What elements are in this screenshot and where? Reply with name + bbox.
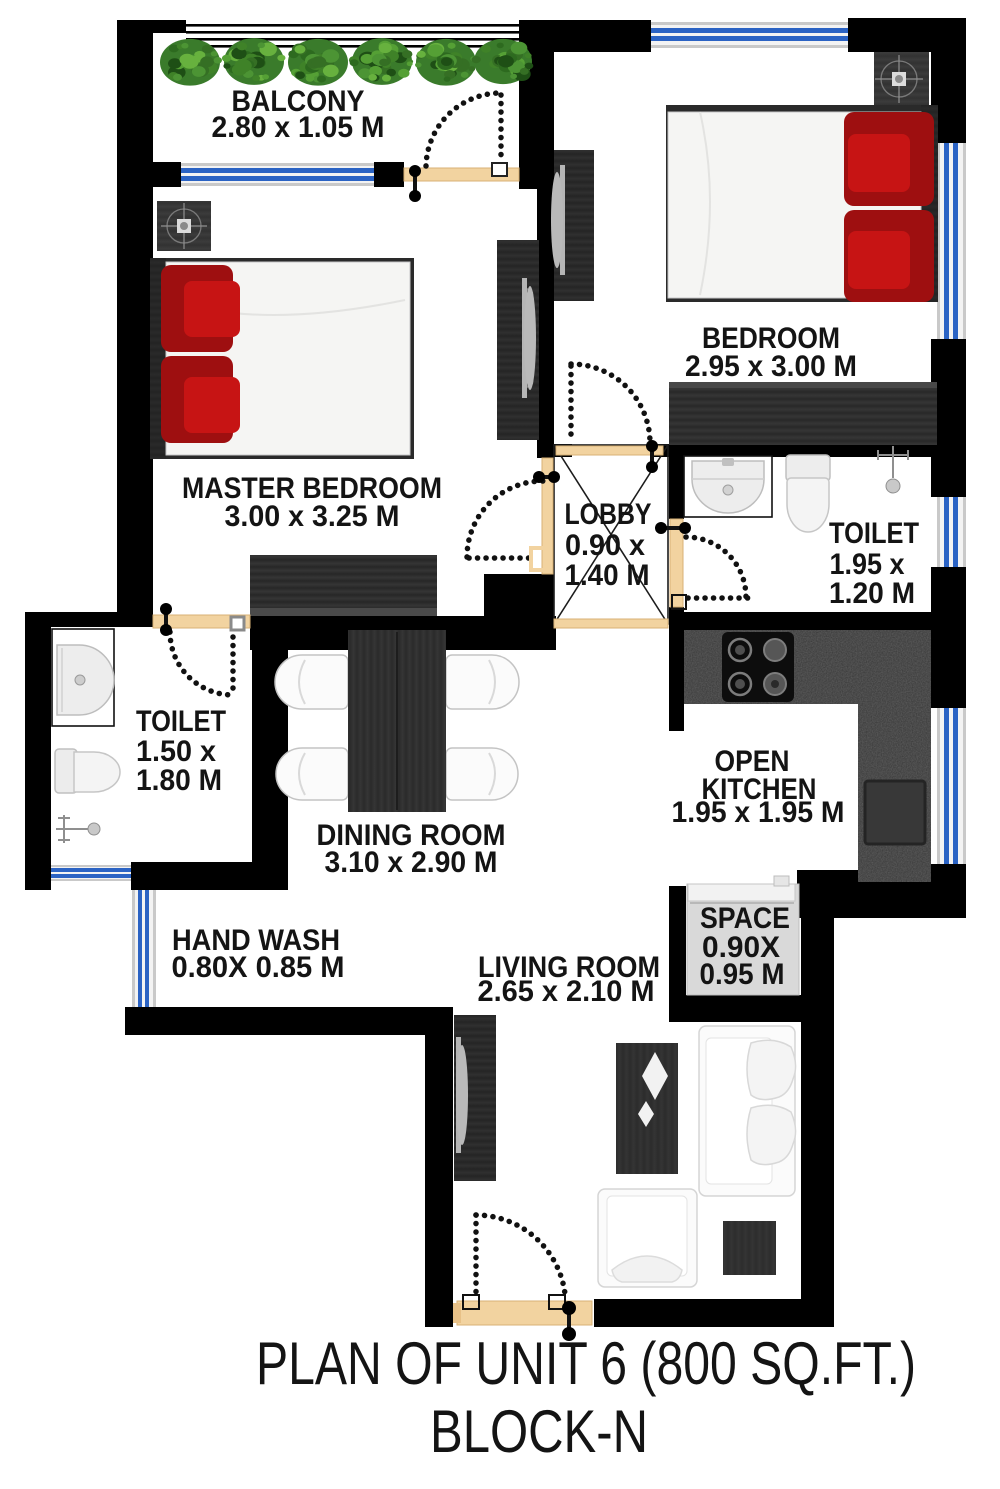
- svg-text:3.10 x 2.90 M: 3.10 x 2.90 M: [325, 846, 498, 879]
- svg-text:1.40 M: 1.40 M: [565, 559, 650, 592]
- svg-text:0.80X 0.85 M: 0.80X 0.85 M: [172, 951, 345, 984]
- svg-text:0.90 x: 0.90 x: [565, 529, 645, 562]
- svg-text:2.95 x 3.00 M: 2.95 x 3.00 M: [685, 350, 857, 383]
- svg-text:BLOCK-N: BLOCK-N: [430, 1398, 648, 1465]
- svg-text:1.80 M: 1.80 M: [136, 764, 222, 797]
- svg-text:2.65 x 2.10 M: 2.65 x 2.10 M: [478, 975, 655, 1008]
- svg-text:0.95 M: 0.95 M: [700, 958, 785, 991]
- svg-text:1.20 M: 1.20 M: [829, 577, 915, 610]
- svg-text:TOILET: TOILET: [829, 517, 919, 550]
- svg-text:TOILET: TOILET: [136, 705, 226, 738]
- svg-text:3.00 x 3.25 M: 3.00 x 3.25 M: [225, 500, 400, 533]
- svg-text:2.80 x 1.05 M: 2.80 x 1.05 M: [212, 111, 385, 144]
- svg-text:PLAN OF UNIT 6 (800 SQ.FT.): PLAN OF UNIT 6 (800 SQ.FT.): [256, 1330, 916, 1397]
- svg-text:LOBBY: LOBBY: [565, 498, 652, 531]
- svg-text:1.95 x 1.95 M: 1.95 x 1.95 M: [672, 796, 845, 829]
